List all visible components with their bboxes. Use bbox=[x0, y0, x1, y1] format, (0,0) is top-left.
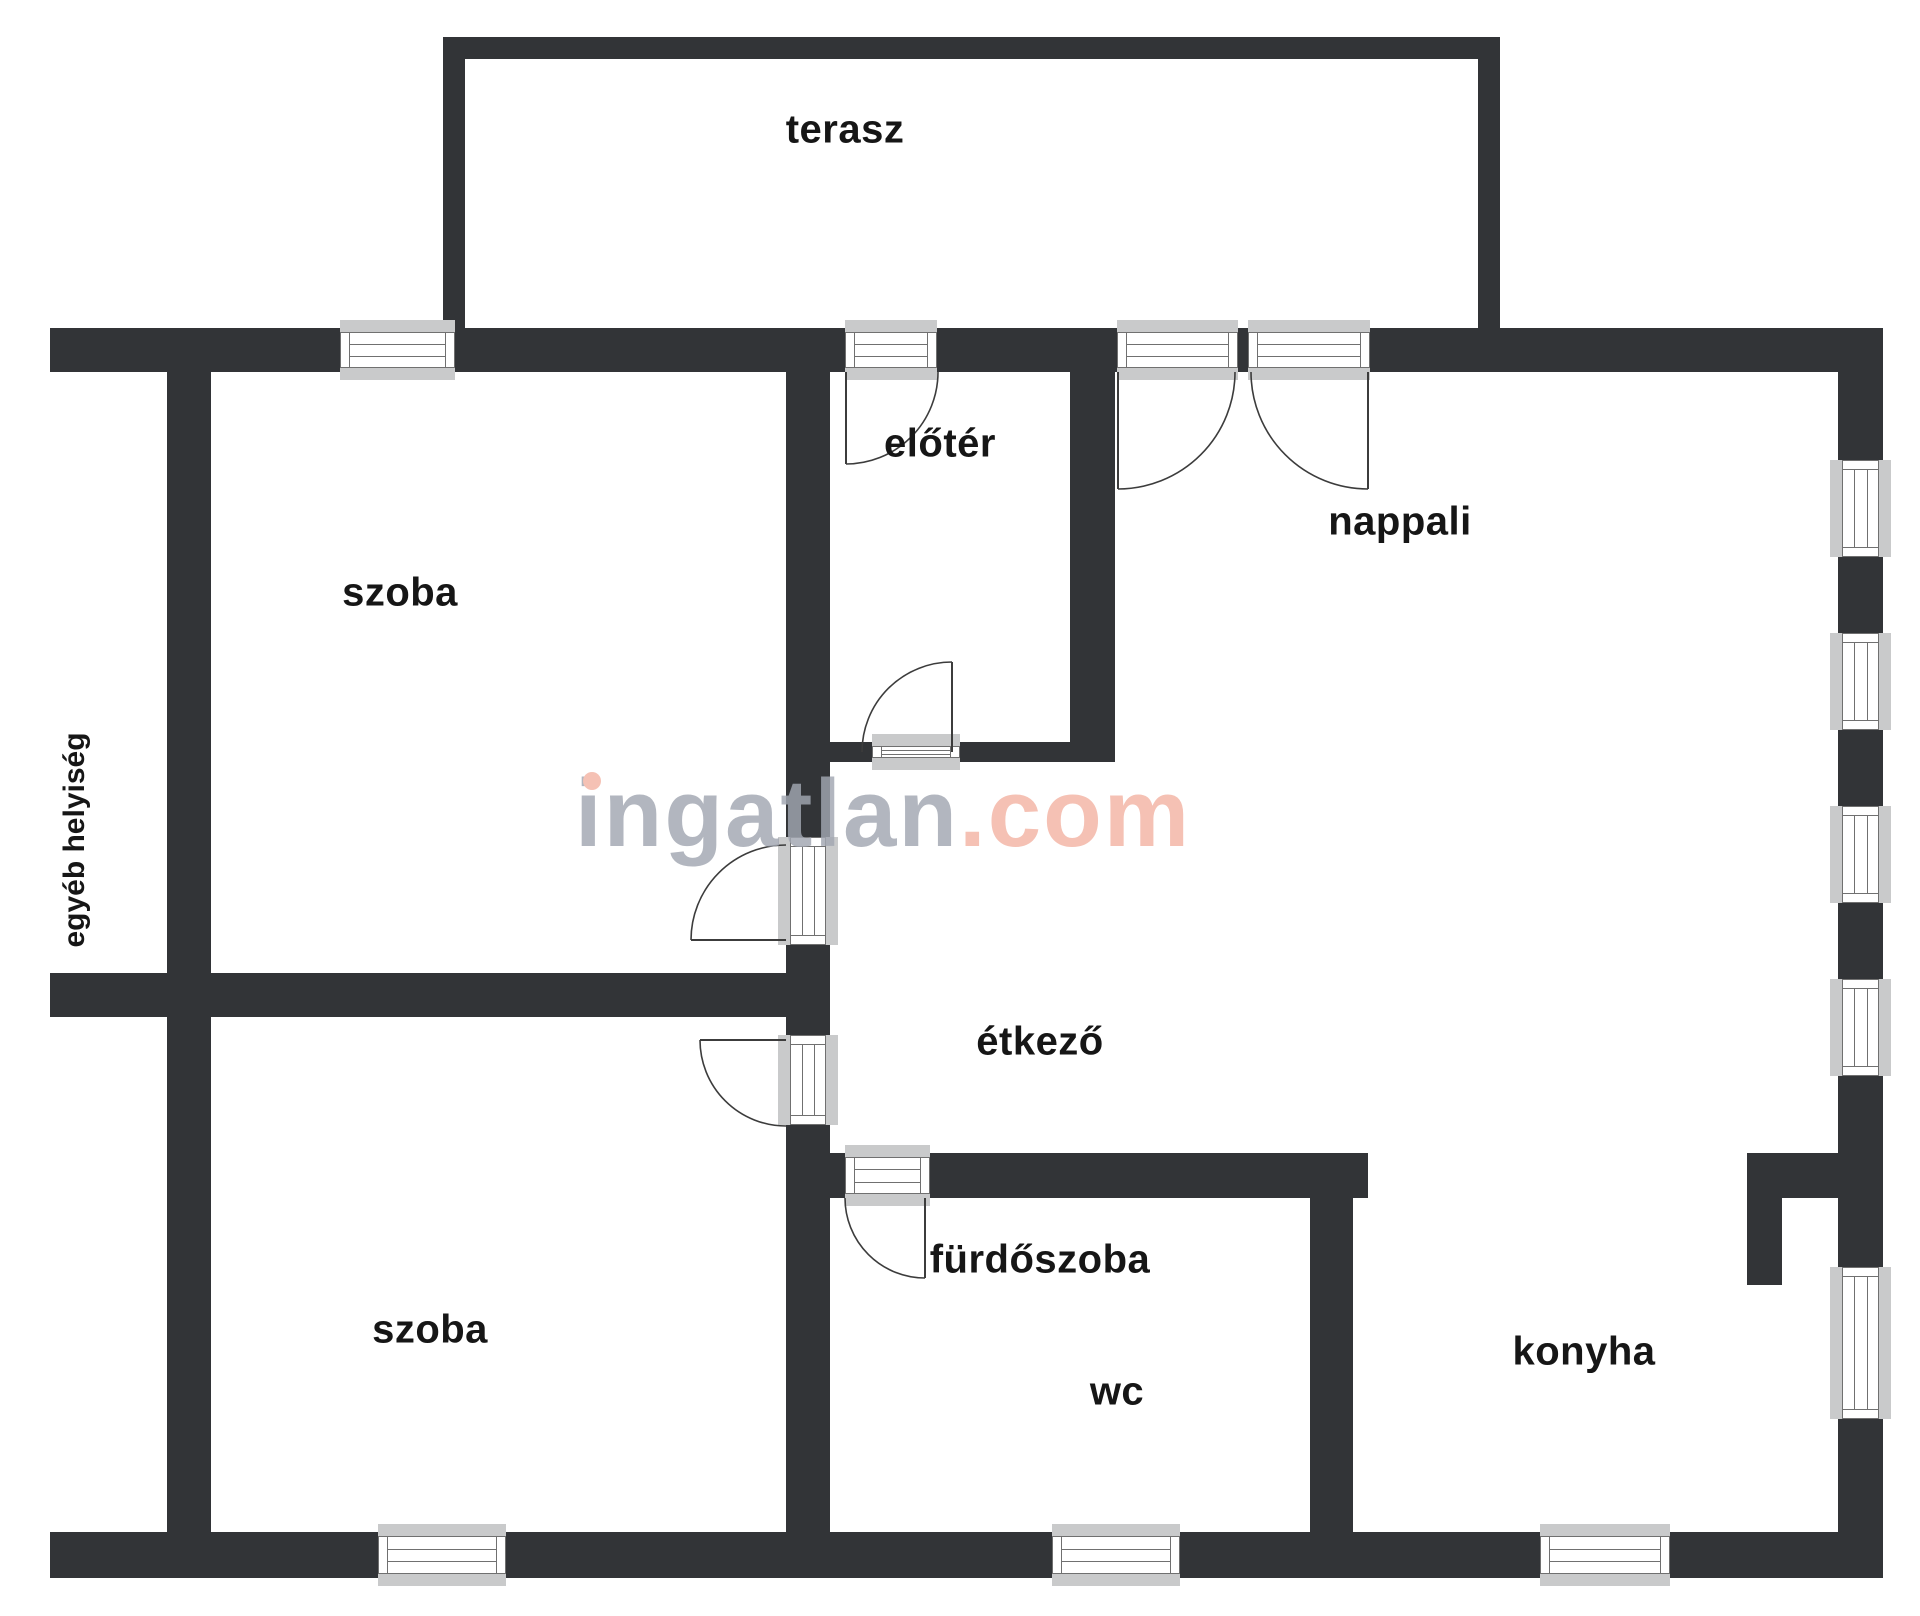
watermark-logo: ingatlan.com bbox=[575, 766, 1191, 862]
room-label-szoba-also: szoba bbox=[372, 1308, 488, 1353]
watermark-i-dot-icon bbox=[583, 772, 601, 790]
room-label-nappali: nappali bbox=[1328, 500, 1472, 545]
room-label-wc: wc bbox=[1090, 1370, 1144, 1415]
watermark-text-ingatlan: ingatlan bbox=[575, 760, 959, 867]
room-label-etkezo: étkező bbox=[976, 1020, 1104, 1065]
side-label-egyeb-helyiseg: egyéb helyiség bbox=[58, 732, 92, 947]
room-label-szoba-felso: szoba bbox=[342, 571, 458, 616]
room-label-eloter: előtér bbox=[884, 422, 996, 467]
door-swing-arc bbox=[845, 1198, 925, 1278]
floor-plan-canvas: ingatlan.com teraszszobaelőtérnappaliétk… bbox=[0, 0, 1920, 1616]
room-label-konyha: konyha bbox=[1512, 1330, 1655, 1375]
watermark-text-com: .com bbox=[959, 760, 1191, 867]
door-swing-arc bbox=[862, 662, 952, 752]
room-label-terasz: terasz bbox=[786, 108, 905, 153]
room-label-furdoszoba: fürdőszoba bbox=[930, 1238, 1151, 1283]
door-swing-arc bbox=[700, 1040, 786, 1126]
door-swing-arc bbox=[1118, 372, 1235, 489]
door-swing-arc bbox=[1251, 372, 1368, 489]
